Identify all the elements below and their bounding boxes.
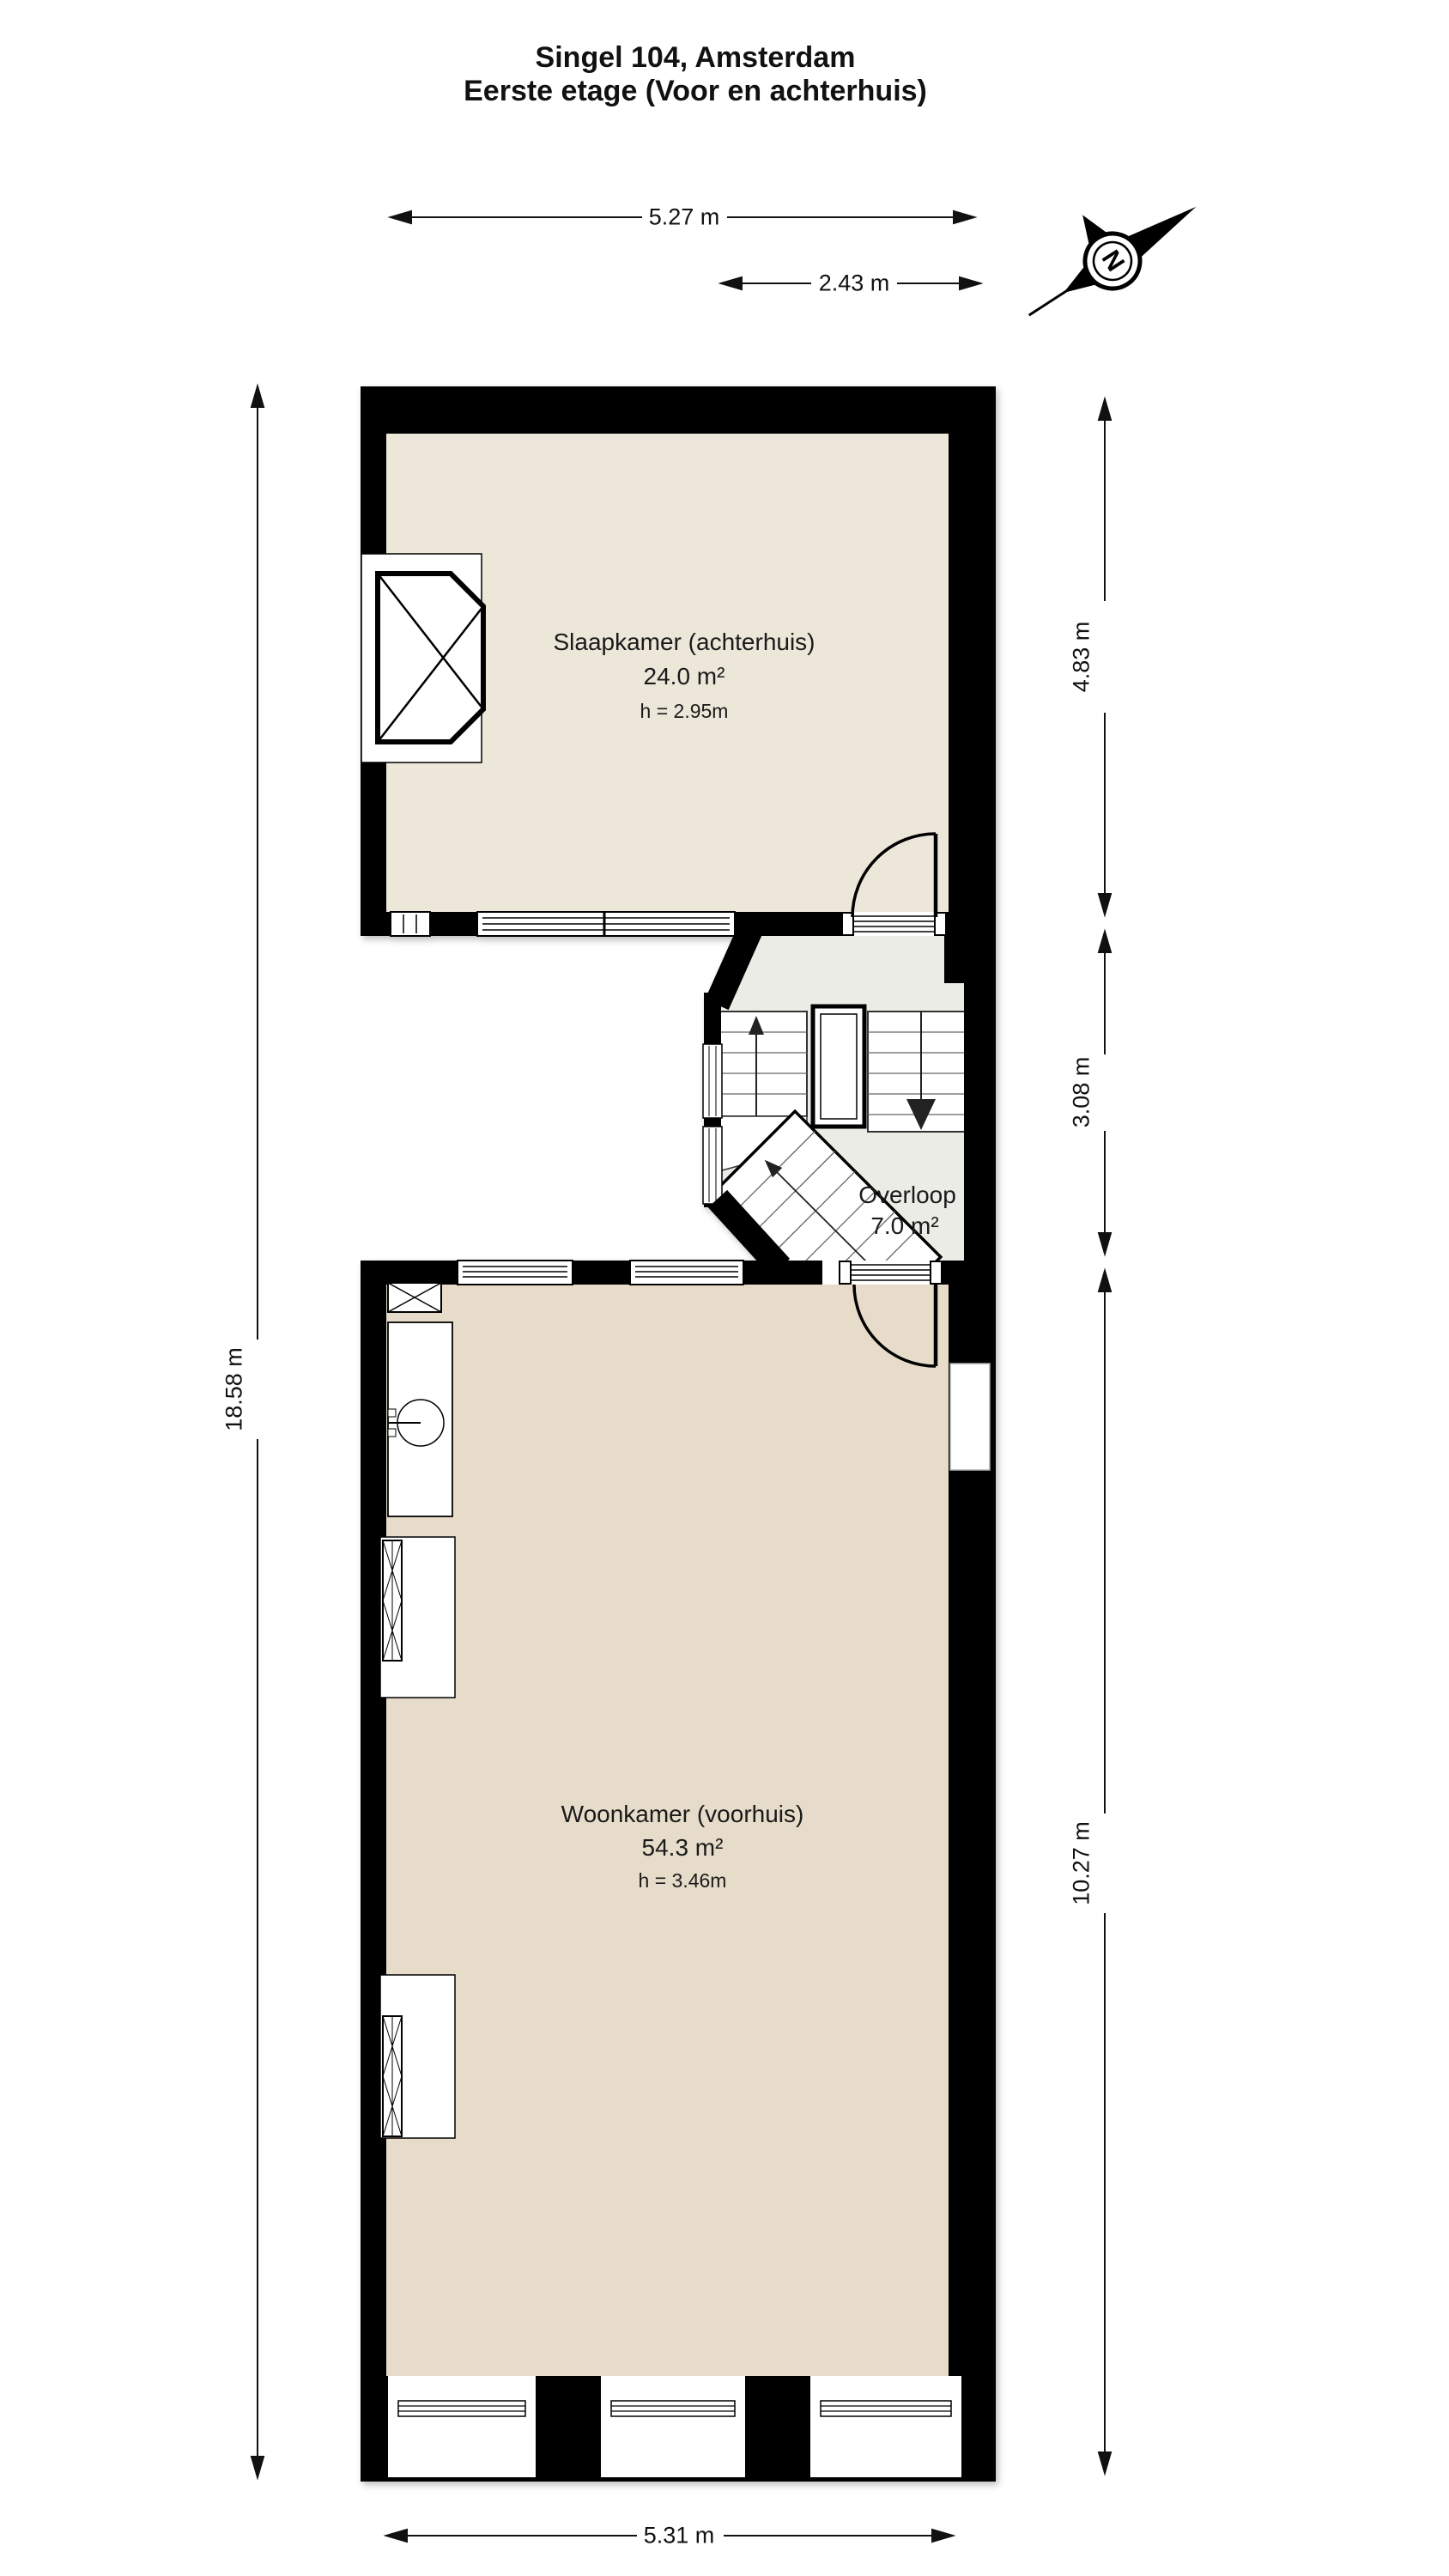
chimney-breast <box>361 554 483 762</box>
floor-plan: Singel 104, Amsterdam Eerste etage (Voor… <box>0 0 1449 2576</box>
woonkamer-door-threshold <box>822 1261 942 1285</box>
dim-voorhuis-width: 5.31 m <box>644 2523 715 2549</box>
plan-title-line2: Eerste etage (Voor en achterhuis) <box>464 75 927 108</box>
slaapkamer-area-label: 24.0 m² <box>644 663 725 690</box>
dim-total-depth: 18.58 m <box>221 1347 248 1431</box>
woonkamer-name-label: Woonkamer (voorhuis) <box>561 1801 804 1828</box>
overloop-name-label: Overloop <box>858 1182 956 1209</box>
compass-icon <box>999 161 1211 338</box>
woonkamer-area-label: 54.3 m² <box>642 1834 724 1862</box>
washbasin-alcove <box>388 1322 452 1516</box>
stair-void <box>813 1006 864 1127</box>
plan-title-line1: Singel 104, Amsterdam <box>464 41 927 75</box>
overloop-area-label: 7.0 m² <box>870 1212 938 1240</box>
duct-box <box>388 1283 441 1312</box>
floor-plan-graphics <box>0 0 1449 2576</box>
slaapkamer-height-label: h = 2.95m <box>640 700 729 722</box>
woonkamer-floor <box>386 1285 949 2376</box>
dim-achterhuis-depth: 4.83 m <box>1069 622 1095 693</box>
slaapkamer-name-label: Slaapkamer (achterhuis) <box>553 629 815 656</box>
dim-achterhuis-inner-width: 2.43 m <box>819 270 890 297</box>
window-niche-1 <box>380 1537 455 1698</box>
wall-recess <box>950 1364 990 1470</box>
facade-windows <box>388 2376 961 2477</box>
staircase-down <box>868 1012 974 1132</box>
dim-stairwell-depth: 3.08 m <box>1069 1057 1095 1128</box>
window-niche-2 <box>380 1975 455 2138</box>
woonkamer-height-label: h = 3.46m <box>639 1869 727 1892</box>
dim-achterhuis-width: 5.27 m <box>649 204 720 231</box>
slaapkamer-door-threshold <box>842 912 946 936</box>
dim-voorhuis-depth: 10.27 m <box>1069 1821 1095 1905</box>
plan-title: Singel 104, Amsterdam Eerste etage (Voor… <box>464 41 927 108</box>
